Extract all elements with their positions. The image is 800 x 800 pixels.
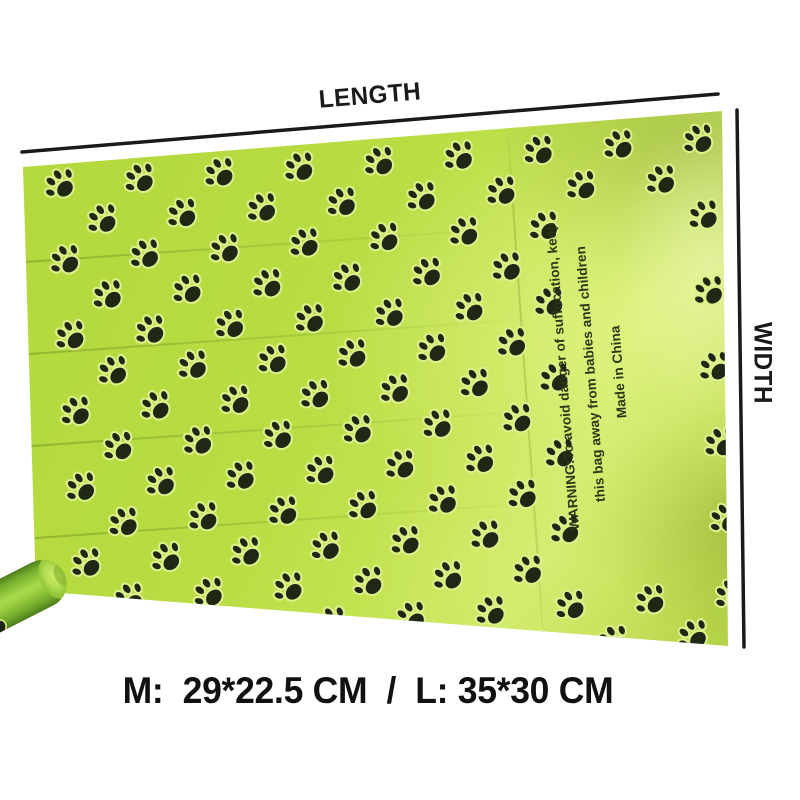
paw-print-icon (591, 618, 636, 663)
paw-print-icon (448, 286, 493, 331)
width-dimension-line (737, 110, 744, 647)
paw-print-icon (336, 408, 381, 453)
size-caption: M: 29*22.5 CM / L: 35*30 CM (123, 670, 614, 712)
paw-print-icon (719, 152, 764, 197)
paw-print-icon (293, 373, 338, 418)
paw-print-icon (134, 384, 179, 429)
paw-print-icon (299, 448, 344, 493)
paw-print-icon (788, 567, 800, 612)
paw-print-icon (144, 535, 189, 580)
paw-print-icon (698, 421, 743, 466)
paw-print-icon (43, 238, 88, 283)
paw-print-icon (442, 210, 487, 255)
paw-print-icon (81, 197, 126, 242)
paw-print-icon (123, 232, 168, 277)
paw-print-icon (283, 221, 328, 266)
paw-print-icon (214, 378, 259, 423)
paw-print-icon (400, 175, 445, 220)
paw-print-icon (746, 532, 791, 577)
paw-print-icon (59, 465, 104, 510)
paw-print-icon (171, 343, 216, 388)
paw-print-icon (469, 589, 514, 634)
paw-print-icon (49, 314, 94, 359)
paw-print-icon (671, 613, 716, 658)
paw-print-icon (288, 297, 333, 342)
paw-print-icon (511, 624, 556, 669)
paw-print-icon (490, 321, 535, 366)
paw-print-icon (458, 437, 503, 482)
paw-print-icon (405, 251, 450, 296)
width-label: WIDTH (748, 322, 777, 404)
paw-print-icon (432, 630, 477, 675)
paw-print-icon (426, 554, 471, 599)
paw-print-icon (341, 484, 386, 529)
product-photo: WARNING:To avoid danger of suffocation, … (0, 0, 800, 800)
paw-print-icon (208, 302, 253, 347)
paw-print-icon (501, 472, 546, 517)
paw-print-icon (708, 572, 753, 617)
paw-print-icon (229, 606, 274, 651)
paw-print-icon (368, 291, 413, 336)
paw-print-icon (198, 151, 243, 196)
paw-print-icon (331, 332, 376, 377)
paw-print-icon (485, 245, 530, 290)
paw-print-icon (740, 456, 785, 501)
paw-print-icon (203, 227, 248, 272)
paw-print-icon (320, 180, 365, 225)
paw-print-icon (767, 263, 800, 308)
paw-print-icon (246, 262, 291, 307)
paw-print-icon (783, 491, 800, 536)
paw-print-icon (384, 519, 429, 564)
paw-print-icon (38, 162, 83, 207)
paw-print-icon (224, 530, 269, 575)
paw-print-icon (240, 186, 285, 231)
paw-print-icon (389, 595, 434, 640)
paw-print-icon (762, 188, 800, 233)
paw-print-icon (677, 117, 722, 162)
paw-print-icon (219, 454, 264, 499)
paw-print-icon (373, 367, 418, 412)
paw-print-icon (464, 513, 509, 558)
paw-print-icon (325, 256, 370, 301)
paw-print-icon (496, 397, 541, 442)
paw-print-icon (160, 192, 205, 237)
paw-print-icon (347, 559, 392, 604)
paw-print-icon (97, 425, 142, 470)
paw-print-icon (0, 607, 16, 647)
paw-print-icon (357, 140, 402, 185)
paw-print-icon (107, 576, 152, 621)
paw-print-icon (480, 169, 525, 214)
paw-print-icon (506, 548, 551, 593)
paw-print-icon (378, 443, 423, 488)
paw-print-icon (166, 267, 211, 312)
paw-print-icon (778, 415, 800, 460)
paw-print-icon (187, 571, 232, 616)
paw-print-icon (692, 345, 737, 390)
paw-print-icon (639, 158, 684, 203)
paw-print-icon (629, 578, 674, 623)
paw-print-icon (70, 617, 115, 662)
paw-print-icon (517, 128, 562, 173)
paw-print-icon (549, 583, 594, 628)
paw-print-icon (251, 338, 296, 383)
paw-print-icon (410, 326, 455, 371)
paw-print-icon (703, 496, 748, 541)
paw-print-icon (176, 419, 221, 464)
paw-print-icon (304, 524, 349, 569)
paw-print-icon (261, 489, 306, 534)
paw-print-icon (421, 478, 466, 523)
paw-print-icon (309, 600, 354, 645)
paw-print-icon (182, 495, 227, 540)
paw-print-icon (363, 215, 408, 260)
paw-print-icon (751, 607, 796, 652)
paw-print-icon (139, 460, 184, 505)
paw-print-icon (256, 413, 301, 458)
paw-print-icon (54, 389, 99, 434)
length-label: LENGTH (318, 77, 423, 114)
paw-print-icon (65, 541, 110, 586)
paw-print-icon (150, 611, 195, 656)
paw-print-icon (118, 156, 163, 201)
paw-print-icon (86, 273, 131, 318)
paw-print-icon (277, 145, 322, 190)
paw-print-icon (756, 112, 800, 157)
paw-print-icon (437, 134, 482, 179)
paw-print-icon (102, 500, 147, 545)
paw-print-icon (597, 123, 642, 168)
bag-pattern (8, 111, 800, 689)
paw-print-icon (453, 362, 498, 407)
paw-print-icon (687, 269, 732, 314)
paw-print-icon (128, 308, 173, 353)
paw-print-icon (682, 193, 727, 238)
paw-print-icon (724, 228, 769, 273)
paw-print-icon (267, 565, 312, 610)
paw-print-icon (91, 349, 136, 394)
paw-print-icon (416, 402, 461, 447)
